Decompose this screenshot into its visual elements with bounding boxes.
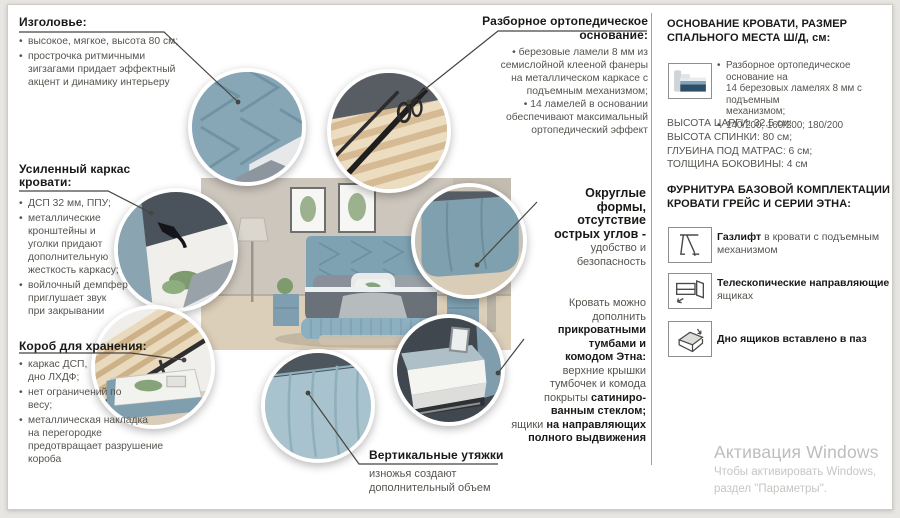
- windows-activation-line: Чтобы активировать Windows,: [714, 464, 893, 481]
- infographic-card: Изголовье: высокое, мягкое, высота 80 см…: [7, 4, 893, 510]
- callout-frame-bullet: ДСП 32 мм, ППУ;: [19, 197, 139, 210]
- windows-activation-text: Чтобы активировать Windows, раздел "Пара…: [714, 464, 893, 497]
- callout-frame-bullet: войлочный демпфер приглушает звук при за…: [19, 279, 139, 318]
- telescopic-rails-icon: [668, 273, 712, 309]
- windows-activation-line: раздел "Параметры".: [714, 481, 893, 498]
- callout-base-title: Разборное ортопедическое основание:: [456, 15, 648, 42]
- callout-nightstands-line: покрыты: [544, 392, 591, 404]
- callout-nightstands-line-bold: тумбами и: [589, 338, 646, 350]
- hardware-item-gas-lift: Газлифт в кровати с подъемным механизмом: [717, 231, 893, 257]
- bed-with-lift-icon: [668, 63, 712, 99]
- headboard-detail-photo: [188, 68, 306, 186]
- bed-with-lift-icon-art: [670, 66, 710, 96]
- callout-headboard: Изголовье: высокое, мягкое, высота 80 см…: [19, 16, 184, 89]
- callout-nightstands: Кровать можно дополнить прикроватными ту…: [466, 297, 646, 446]
- callout-nightstands-line-bold: на направляющих: [546, 419, 646, 431]
- callout-storage-bullet: нет ограничений по весу;: [19, 386, 179, 412]
- slats-lift-image: [331, 73, 447, 189]
- dimension-line: ВЫСОТА ЦАРГИ: 32,5 см;: [667, 117, 812, 131]
- dimension-line: ТОЛЩИНА БОКОВИНЫ: 4 см: [667, 158, 812, 172]
- callout-storage: Короб для хранения: каркас ДСП, дно ЛХДФ…: [19, 340, 179, 466]
- hardware-item-telescopic-rails: Телескопические направляющие в ящиках: [717, 277, 893, 303]
- callout-ties-title: Вертикальные утяжки: [369, 449, 503, 462]
- size-bullet: Разборное ортопедическое основание на 14…: [717, 60, 893, 118]
- drawer-bottom-icon-art: [672, 324, 708, 354]
- rounded-corner-detail-photo: [411, 183, 527, 299]
- gas-lift-icon-art: [672, 230, 708, 260]
- windows-activation-title: Активация Windows: [714, 442, 879, 463]
- callout-nightstands-line-bold: сатиниро-: [591, 392, 646, 404]
- callout-rounded-forms: Округлые формы, отсутствие острых углов …: [546, 187, 646, 269]
- callout-nightstands-line: тумбочек и комода: [550, 378, 646, 390]
- callout-storage-bullet: металлическая накладка на перегородке пр…: [19, 414, 179, 466]
- vertical-ties-detail-photo: [261, 349, 375, 463]
- callout-frame: Усиленный каркас кровати: ДСП 32 мм, ППУ…: [19, 163, 139, 318]
- hardware-item-bold: Телескопические направляющие: [717, 277, 889, 289]
- callout-frame-title: Усиленный каркас кровати:: [19, 163, 131, 189]
- callout-base-bullet: 14 ламелей в основании обеспечивают макс…: [456, 98, 648, 137]
- callout-headboard-bullet: высокое, мягкое, высота 80 см;: [19, 35, 184, 48]
- dimension-line: ГЛУБИНА ПОД МАТРАС: 6 см;: [667, 145, 812, 159]
- dimensions-list: ВЫСОТА ЦАРГИ: 32,5 см; ВЫСОТА СПИНКИ: 80…: [667, 117, 812, 172]
- telescopic-rails-icon-art: [672, 276, 708, 306]
- callout-nightstands-line: верхние крышки: [563, 365, 646, 377]
- hardware-item-drawer-bottom: Дно ящиков вставлено в паз: [717, 333, 893, 346]
- callout-ties: Вертикальные утяжки: [369, 449, 503, 462]
- dimension-line: ВЫСОТА СПИНКИ: 80 см;: [667, 131, 812, 145]
- footboard-corner-image: [415, 187, 523, 295]
- callout-ties-text: изножья создают дополнительный объем: [369, 468, 519, 495]
- callout-nightstands-line-bold: полного выдвижения: [528, 432, 646, 444]
- panel-divider: [651, 13, 652, 465]
- callout-base-bullet: березовые ламели 8 мм из семислойной кле…: [456, 46, 648, 98]
- hardware-item-bold: Газлифт: [717, 231, 761, 243]
- callout-nightstands-line: Кровать можно: [569, 297, 646, 309]
- callout-nightstands-line: ящики: [511, 419, 546, 431]
- callout-rounded-forms-title: Округлые формы, отсутствие острых углов …: [546, 187, 646, 241]
- drawer-bottom-icon: [668, 321, 712, 357]
- callout-nightstands-line: дополнить: [592, 311, 646, 323]
- hardware-item-bold: Дно ящиков вставлено в паз: [717, 333, 867, 345]
- footboard-ties-image: [265, 353, 371, 459]
- callout-nightstands-line-bold: комодом Этна:: [565, 351, 646, 363]
- gas-lift-icon: [668, 227, 712, 263]
- callout-headboard-bullet: прострочка ритмичными зигзагами придает …: [19, 50, 184, 89]
- callout-storage-title: Короб для хранения:: [19, 340, 179, 353]
- callout-rounded-forms-text: удобство и безопасность: [546, 242, 646, 269]
- callout-base: Разборное ортопедическое основание: бере…: [456, 15, 648, 137]
- headboard-zigzag-image: [192, 72, 302, 182]
- slats-base-detail-photo: [327, 69, 451, 193]
- hardware-section-title: ФУРНИТУРА БАЗОВОЙ КОМПЛЕКТАЦИИ КРОВАТИ Г…: [667, 183, 893, 211]
- callout-storage-bullet: каркас ДСП, дно ЛХДФ;: [19, 358, 179, 384]
- callout-headboard-title: Изголовье:: [19, 16, 184, 29]
- callout-frame-bullet: металлические кронштейны и уголки придаю…: [19, 212, 139, 277]
- size-section-title: ОСНОВАНИЕ КРОВАТИ, РАЗМЕР СПАЛЬНОГО МЕСТ…: [667, 17, 893, 45]
- callout-nightstands-line-bold: прикроватными: [558, 324, 646, 336]
- callout-nightstands-line-bold: ванным стеклом;: [551, 405, 646, 417]
